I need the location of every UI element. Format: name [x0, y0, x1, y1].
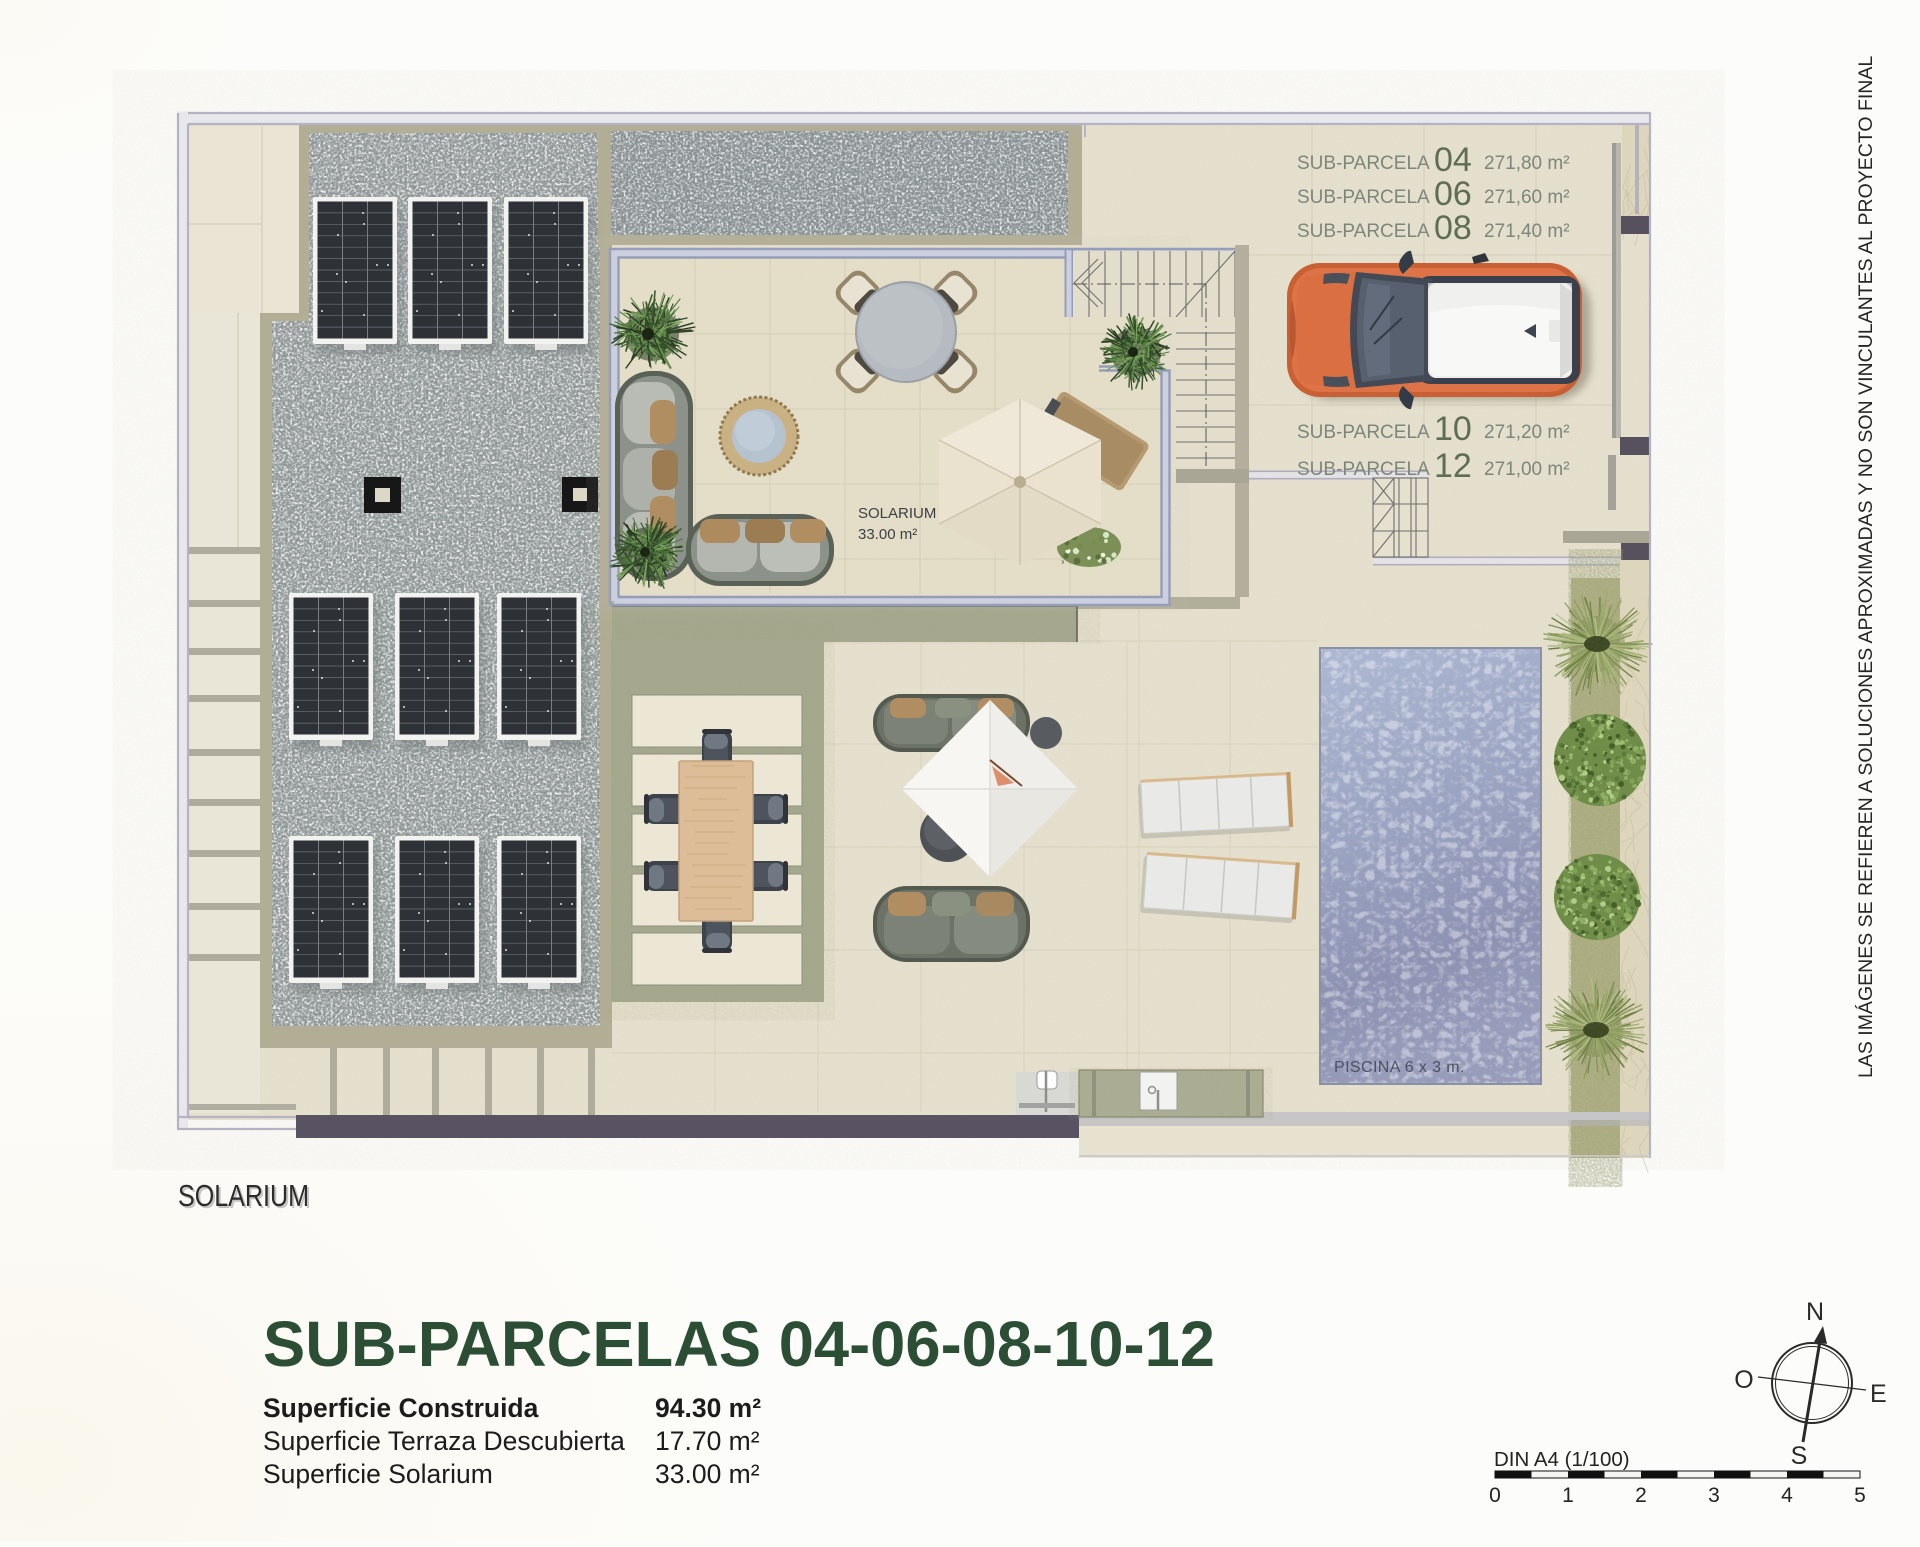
svg-text:S: S [1791, 1442, 1808, 1470]
svg-text:PISCINA 6 x 3 m.: PISCINA 6 x 3 m. [1334, 1059, 1465, 1076]
svg-text:SOLARIUM: SOLARIUM [178, 1178, 309, 1213]
svg-text:SUB-PARCELAS 04-06-08-10-12: SUB-PARCELAS 04-06-08-10-12 [263, 1308, 1215, 1380]
svg-text:SOLARIUM: SOLARIUM [858, 505, 936, 522]
svg-text:271,00 m²: 271,00 m² [1484, 459, 1570, 480]
svg-text:271,80 m²: 271,80 m² [1484, 153, 1570, 174]
svg-text:Superficie Solarium: Superficie Solarium [263, 1459, 493, 1489]
svg-text:4: 4 [1781, 1484, 1793, 1507]
svg-text:SUB-PARCELA: SUB-PARCELA [1297, 187, 1430, 208]
svg-text:271,40 m²: 271,40 m² [1484, 221, 1570, 242]
svg-text:3: 3 [1708, 1484, 1720, 1507]
svg-text:Superficie Construida: Superficie Construida [263, 1393, 539, 1423]
svg-text:SUB-PARCELA: SUB-PARCELA [1297, 221, 1430, 242]
svg-text:2: 2 [1635, 1484, 1647, 1507]
svg-text:271,20 m²: 271,20 m² [1484, 422, 1570, 443]
svg-text:5: 5 [1854, 1484, 1866, 1507]
svg-text:33.00 m²: 33.00 m² [655, 1459, 760, 1489]
svg-text:10: 10 [1434, 410, 1472, 448]
svg-text:DIN A4 (1/100): DIN A4 (1/100) [1494, 1448, 1630, 1471]
svg-text:Superficie Terraza Descubierta: Superficie Terraza Descubierta [263, 1426, 625, 1456]
svg-text:SUB-PARCELA: SUB-PARCELA [1297, 422, 1430, 443]
svg-text:04: 04 [1434, 141, 1472, 179]
svg-text:17.70 m²: 17.70 m² [655, 1426, 760, 1456]
svg-text:12: 12 [1434, 447, 1472, 485]
svg-text:E: E [1870, 1380, 1887, 1408]
svg-text:SUB-PARCELA: SUB-PARCELA [1297, 459, 1430, 480]
svg-text:1: 1 [1562, 1484, 1574, 1507]
svg-text:94.30 m²: 94.30 m² [655, 1393, 761, 1423]
svg-text:0: 0 [1489, 1484, 1501, 1507]
svg-text:LAS IMÁGENES SE REFIEREN A SOL: LAS IMÁGENES SE REFIEREN A SOLUCIONES AP… [1854, 56, 1877, 1078]
svg-text:N: N [1806, 1298, 1824, 1326]
svg-text:SUB-PARCELA: SUB-PARCELA [1297, 153, 1430, 174]
svg-text:O: O [1734, 1366, 1753, 1394]
svg-text:06: 06 [1434, 175, 1472, 213]
svg-text:271,60 m²: 271,60 m² [1484, 187, 1570, 208]
svg-text:08: 08 [1434, 209, 1472, 247]
svg-text:33.00 m²: 33.00 m² [858, 526, 917, 543]
